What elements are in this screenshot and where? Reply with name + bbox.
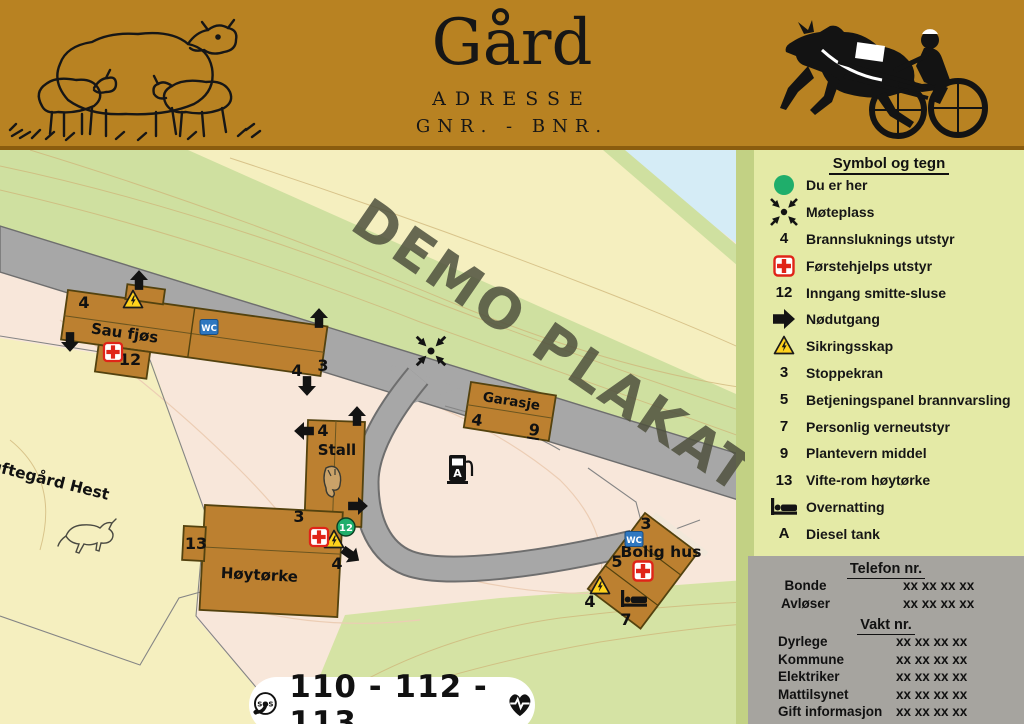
phone-title: Telefon nr. <box>748 561 1024 577</box>
farm-map-canvas: Høytørke Garasje 4 9 Sau fjøs Stall Boli… <box>0 150 745 724</box>
number-marker: 4 <box>78 293 89 312</box>
number-symbol: 4 <box>766 230 802 247</box>
warning-icon <box>766 334 802 358</box>
phone-row: Dyrlege xx xx xx xx <box>748 633 1024 651</box>
stall-label: Stall <box>318 441 356 459</box>
wc-badge: WC <box>200 320 218 335</box>
header-banner: Gård ADRESSE GNR. - BNR. <box>0 0 1024 150</box>
farm-map: Høytørke Garasje 4 9 Sau fjøs Stall Boli… <box>0 150 745 724</box>
number-marker: 5 <box>611 552 622 571</box>
number-marker: 4 <box>317 421 328 440</box>
emergency-numbers: 110 - 112 - 113 <box>289 669 496 724</box>
phone-row: Gift informasjon xx xx xx xx <box>748 703 1024 721</box>
number-marker: 4 <box>331 554 342 573</box>
number-marker: 4 <box>584 592 595 611</box>
number-marker: 4 <box>291 361 302 380</box>
number-marker: 3 <box>293 507 304 526</box>
sheep-illustration-icon <box>6 4 274 144</box>
number-marker: 13 <box>185 534 207 553</box>
phone-row: Elektriker xx xx xx xx <box>748 668 1024 686</box>
number-symbol: A <box>766 525 802 542</box>
location-dot-icon <box>766 174 802 196</box>
legend-item-stoppekran: 3 Stoppekran <box>754 360 1024 387</box>
svg-text:A: A <box>453 467 462 480</box>
farm-title: Gård <box>312 0 712 86</box>
phone-row: Mattilsynet xx xx xx xx <box>748 686 1024 704</box>
first-aid-icon <box>766 254 802 278</box>
phone-row: Avløser xx xx xx xx <box>748 595 1024 613</box>
legend-item-verneutstyr: 7 Personlig verneutstyr <box>754 413 1024 440</box>
svg-text:WC: WC <box>201 324 217 334</box>
sos-phone-icon: SOS <box>249 684 280 724</box>
number-symbol: 3 <box>766 364 802 381</box>
legend-item-plantevern: 9 Plantevern middel <box>754 440 1024 467</box>
number-symbol: 12 <box>766 284 802 301</box>
number-symbol: 5 <box>766 391 802 408</box>
first-aid-icon <box>310 528 328 546</box>
wc-badge: WC <box>625 532 643 547</box>
number-marker: 3 <box>640 514 651 533</box>
legend-item-moteplass: Møteplass <box>754 199 1024 226</box>
legend-item-sikringsskap: Sikringsskap <box>754 333 1024 360</box>
legend-item-brannslukning: 4 Brannsluknings utstyr <box>754 226 1024 253</box>
trotting-horse-illustration-icon <box>778 4 1010 146</box>
guard-title: Vakt nr. <box>748 617 1024 633</box>
farm-safety-poster: Gård ADRESSE GNR. - BNR. <box>0 0 1024 724</box>
phone-numbers-panel: Telefon nr. Bonde xx xx xx xx Avløser xx… <box>748 556 1024 724</box>
legend-item-vifterom: 13 Vifte-rom høytørke <box>754 467 1024 494</box>
legend-item-diesel: A Diesel tank <box>754 520 1024 547</box>
svg-text:12: 12 <box>339 523 353 534</box>
phone-row: Kommune xx xx xx xx <box>748 651 1024 669</box>
number-marker: 3 <box>317 356 328 375</box>
exit-arrow-icon <box>766 307 802 331</box>
number-marker: 7 <box>620 610 631 629</box>
legend-item-smitte-sluse: 12 Inngang smitte-sluse <box>754 279 1024 306</box>
phone-row: Bonde xx xx xx xx <box>748 577 1024 595</box>
address-line: ADRESSE <box>312 88 712 110</box>
legend-item-forstehjelp: Førstehjelps utstyr <box>754 252 1024 279</box>
legend-title: Symbol og tegn <box>754 155 1024 172</box>
meeting-point-icon <box>766 198 802 226</box>
number-symbol: 13 <box>766 472 802 489</box>
building-hoytorke: Høytørke <box>180 504 343 617</box>
number-symbol: 7 <box>766 418 802 435</box>
heart-pulse-icon <box>505 686 535 724</box>
number-symbol: 9 <box>766 445 802 462</box>
first-aid-icon <box>634 562 653 581</box>
legend-item-du-er-her: Du er her <box>754 172 1024 199</box>
header-titles: Gård ADRESSE GNR. - BNR. <box>312 0 712 137</box>
legend-item-nodutgang: Nødutgang <box>754 306 1024 333</box>
gnr-bnr-line: GNR. - BNR. <box>312 116 712 137</box>
smitte-sluse-marker: 12 <box>337 518 355 536</box>
legend-item-betjeningspanel: 5 Betjeningspanel brannvarsling <box>754 386 1024 413</box>
first-aid-icon <box>104 343 122 361</box>
svg-text:WC: WC <box>626 536 642 546</box>
emergency-number-pill: SOS 110 - 112 - 113 <box>249 677 535 724</box>
bed-icon <box>766 495 802 519</box>
legend-item-overnatting: Overnatting <box>754 494 1024 521</box>
